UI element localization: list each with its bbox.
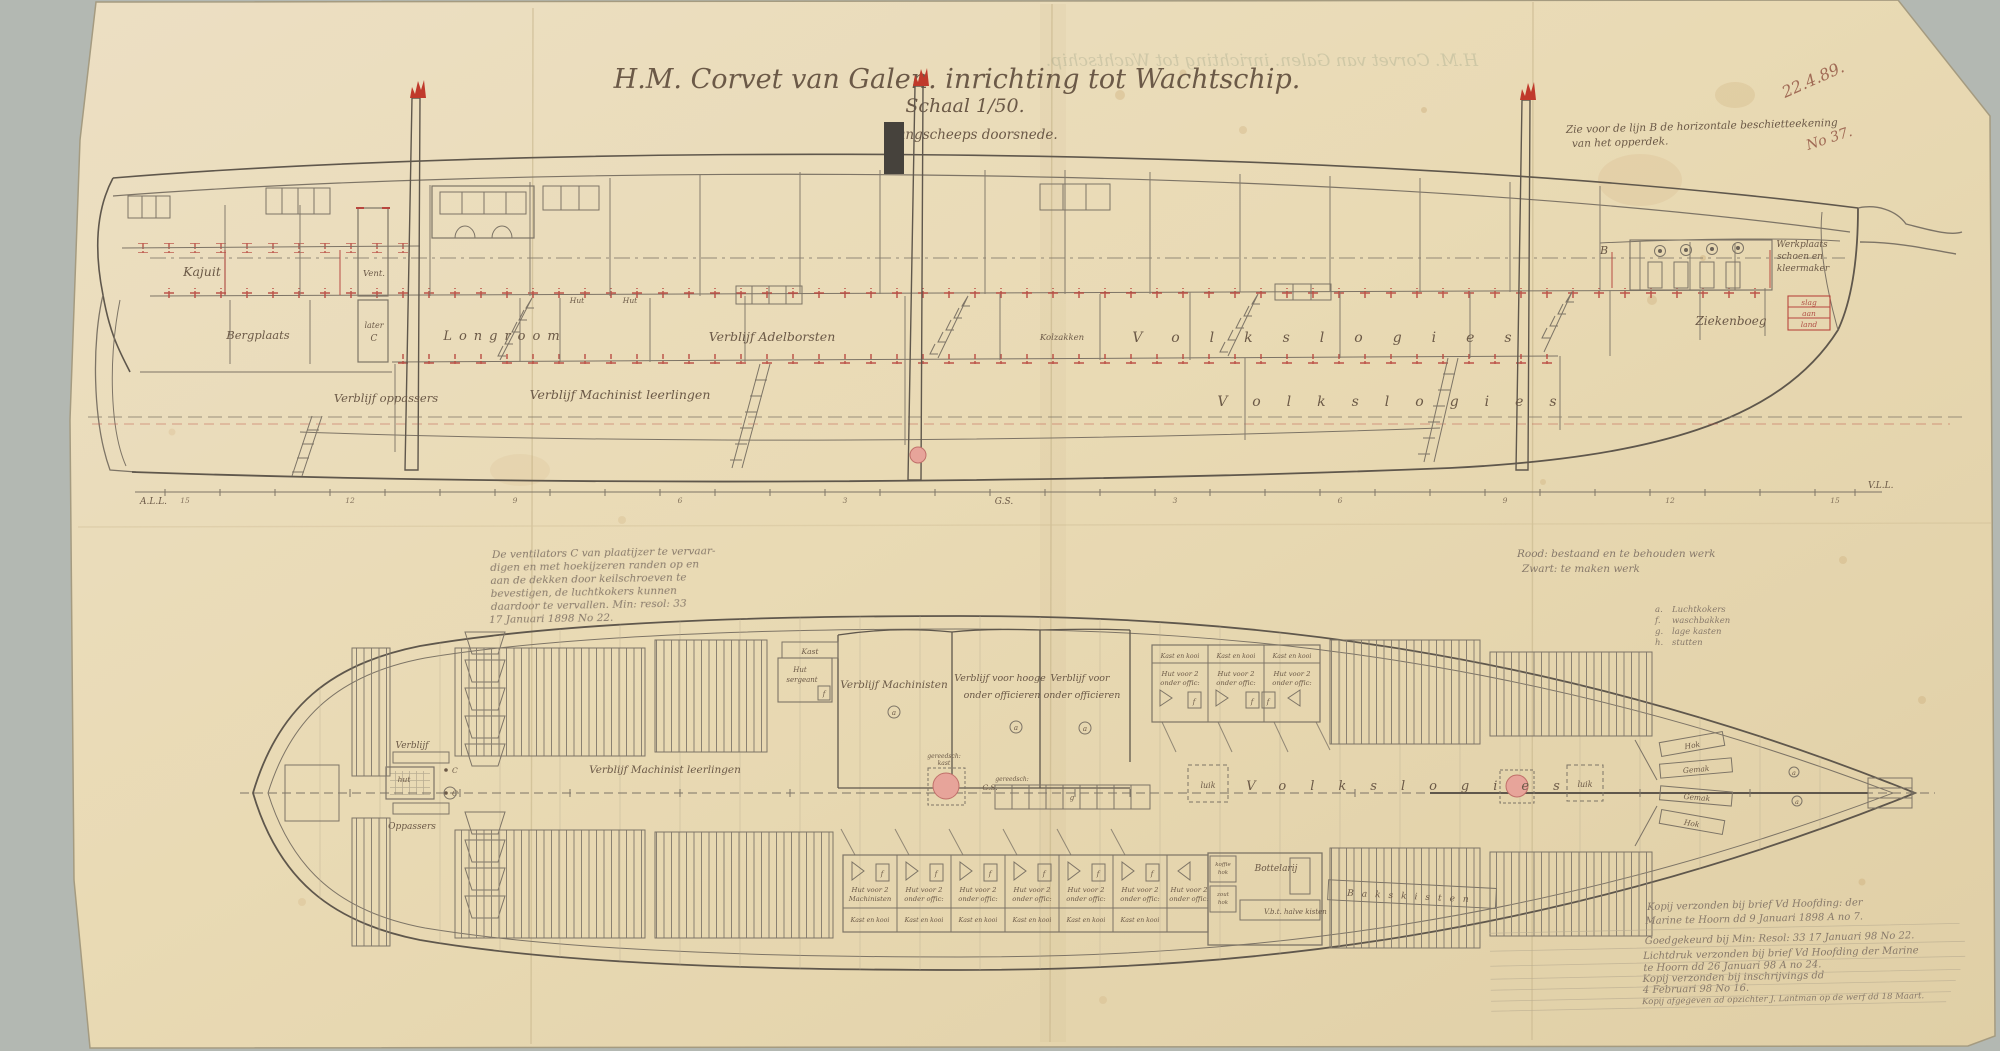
room-later: later — [364, 321, 384, 330]
koffie-hok-1: koffie — [1215, 862, 1231, 868]
koffie-hok-2: hok — [1218, 870, 1229, 876]
room-kolzakken: Kolzakken — [1039, 333, 1084, 343]
station-number: 15 — [1830, 496, 1840, 505]
legend-label: Luchtkokers — [1671, 605, 1726, 615]
room-later-c: C — [371, 334, 378, 344]
zout-hok-2: hok — [1218, 900, 1229, 906]
station-number: 6 — [678, 496, 683, 505]
profile-view-caption: Langscheeps doorsnede. — [887, 127, 1057, 143]
station-number: 3 — [1173, 496, 1178, 505]
top-strip-kastkooi: Kast en kooi — [1160, 653, 1200, 660]
top-cabin-label2: onder offic: — [1216, 679, 1255, 687]
funnel — [884, 122, 904, 174]
plan-verblijf-label: Verblijf — [396, 741, 431, 751]
plan-hut-label: hut — [398, 775, 412, 784]
store-row-label-aan: aan — [1802, 309, 1816, 318]
lower-deck-red-fastenings — [392, 354, 1558, 364]
station-number: 9 — [513, 496, 518, 505]
main-mast-step-pink — [910, 447, 926, 463]
store-row-label-slag: slag — [1801, 298, 1817, 307]
room-kajuit: Kajuit — [182, 264, 222, 279]
store-row-label-land: land — [1801, 320, 1818, 329]
top-cabin-label2: onder offic: — [1272, 679, 1311, 687]
cabin-off2: onder offic: — [904, 895, 943, 903]
legend-key: g. — [1655, 627, 1663, 637]
top-cabin-label: Hut voor 2 — [1273, 670, 1311, 678]
room-werkplaats-3: kleermaker — [1777, 264, 1830, 274]
main-deck-red-fastenings — [150, 288, 1768, 298]
plan-gs-marker: G.S. — [982, 783, 997, 792]
room-onderoff-2: onder officieren — [1044, 690, 1121, 701]
room-werkplaats-2: schoen en — [1777, 252, 1823, 262]
cabin-mach-2: Machinisten — [848, 895, 892, 903]
note-line-b-2: van het opperdek. — [1572, 135, 1669, 150]
colour-key-black: Zwart: te maken werk — [1521, 563, 1640, 575]
legend-label: stutten — [1672, 638, 1703, 648]
cabin-off2: onder offic: — [1066, 895, 1105, 903]
scale-left-label: A.L.L. — [139, 497, 167, 507]
marker-g-locker: g — [1070, 794, 1075, 802]
hatch-luik-1: luik — [1200, 781, 1215, 790]
room-longroom: Longroom — [442, 329, 566, 344]
gereedschap-label-1a: gereedsch: — [995, 776, 1029, 783]
scale-right-label: V.L.L. — [1868, 481, 1894, 491]
cabin-off2: onder offic: — [958, 895, 997, 903]
ship-plan-drawing: H.M. Corvet van Galen. inrichting tot Wa… — [0, 0, 2000, 1051]
top-strip-kastkooi: Kast en kooi — [1216, 653, 1256, 660]
strip-kastkooi: Kast en kooi — [850, 917, 890, 924]
room-hut-b: Hut — [622, 296, 638, 305]
room-ziekenboeg: Ziekenboeg — [1694, 314, 1766, 328]
cabin-mach-1: Hut voor 2 — [851, 886, 889, 894]
kast-label: Kast — [801, 647, 820, 656]
room-werkplaats-1: Werkplaats — [1776, 240, 1828, 250]
zout-hok-1: zout — [1216, 892, 1230, 898]
gereedschap-label-2a: gereedsch: — [927, 753, 961, 760]
vent-note-line: 17 Januari 1898 No 22. — [489, 612, 613, 626]
room-oppassers: Verblijf oppassers — [334, 391, 438, 405]
bottelarij-label: Bottelarij — [1254, 864, 1298, 874]
hut-sergeant-2: sergeant — [786, 676, 817, 684]
marker-a-machinisten: a — [892, 709, 896, 717]
top-cabin-label2: onder offic: — [1160, 679, 1199, 687]
room-hooge-onderoff-1: Verblijf voor hooge — [954, 673, 1046, 684]
drawing-title: H.M. Corvet van Galen. inrichting tot Wa… — [613, 64, 1301, 95]
strip-kastkooi: Kast en kooi — [958, 917, 998, 924]
top-strip-kastkooi: Kast en kooi — [1272, 653, 1312, 660]
room-bergplaats: Bergplaats — [225, 328, 289, 342]
cabin-off2: onder offic: — [1169, 895, 1208, 903]
room-onderoff-1: Verblijf voor — [1050, 673, 1111, 684]
main-mast-plan-pink — [933, 773, 959, 799]
room-volkslogies-lower: Volkslogies — [1217, 394, 1582, 410]
station-number: 15 — [180, 496, 190, 505]
legend-key: f. — [1654, 616, 1661, 626]
plan-c-marker-1: C — [452, 766, 458, 775]
legend-key: h. — [1655, 638, 1663, 648]
cabin-off2: onder offic: — [1012, 895, 1051, 903]
marker-a-bow1: a — [1792, 769, 1796, 777]
station-number: 6 — [1338, 496, 1343, 505]
station-number: 3 — [843, 496, 848, 505]
cabin-off: Hut voor 2 — [1121, 886, 1159, 894]
room-adelborsten: Verblijf Adelborsten — [709, 329, 836, 344]
hut-sergeant-1: Hut — [792, 666, 807, 674]
marker-a-hooge: a — [1014, 724, 1018, 732]
room-hooge-onderoff-2: onder officieren — [964, 690, 1041, 701]
plan-machinist-leerlingen: Verblijf Machinist leerlingen — [589, 764, 741, 776]
cabin-off: Hut voor 2 — [1067, 886, 1105, 894]
station-number: 12 — [345, 496, 355, 505]
strip-kastkooi: Kast en kooi — [1120, 917, 1160, 924]
station-number: 9 — [1503, 496, 1508, 505]
marker-a-onderoff: a — [1083, 725, 1087, 733]
cabin-off: Hut voor 2 — [1170, 886, 1208, 894]
colour-key-red: Rood: bestaand en te behouden werk — [1516, 548, 1716, 560]
cabin-off: Hut voor 2 — [1013, 886, 1051, 894]
strip-kastkooi: Kast en kooi — [1066, 917, 1106, 924]
room-machinist-leerlingen: Verblijf Machinist leerlingen — [530, 387, 711, 402]
strip-kastkooi: Kast en kooi — [904, 917, 944, 924]
marker-a-bow2: a — [1795, 798, 1799, 806]
top-cabin-label: Hut voor 2 — [1217, 670, 1255, 678]
room-hut-a: Hut — [569, 296, 585, 305]
legend-label: waschbakken — [1672, 616, 1730, 626]
top-cabin-label: Hut voor 2 — [1161, 670, 1199, 678]
room-vent: Vent. — [363, 269, 385, 279]
room-machinisten: Verblijf Machinisten — [840, 679, 948, 691]
legend-key: a. — [1655, 605, 1663, 615]
scanned-ship-drawing-sheet: H.M. Corvet van Galen. inrichting tot Wa… — [0, 0, 2000, 1051]
cabin-off: Hut voor 2 — [959, 886, 997, 894]
scale-center-label: G.S. — [995, 497, 1014, 507]
station-number: 12 — [1665, 496, 1675, 505]
plan-volkslogies: Volkslogies — [1246, 779, 1584, 794]
gereedschap-label-2b: kast — [938, 760, 951, 767]
strip-kastkooi: Kast en kooi — [1012, 917, 1052, 924]
plan-oppassers-label: Oppassers — [388, 822, 436, 832]
legend-label: lage kasten — [1672, 627, 1721, 637]
cabin-off2: onder offic: — [1120, 895, 1159, 903]
halve-kisten-label: V.b.t. halve kisten — [1264, 908, 1327, 916]
room-volkslogies-upper: Volkslogies — [1132, 330, 1541, 346]
cabin-off: Hut voor 2 — [905, 886, 943, 894]
